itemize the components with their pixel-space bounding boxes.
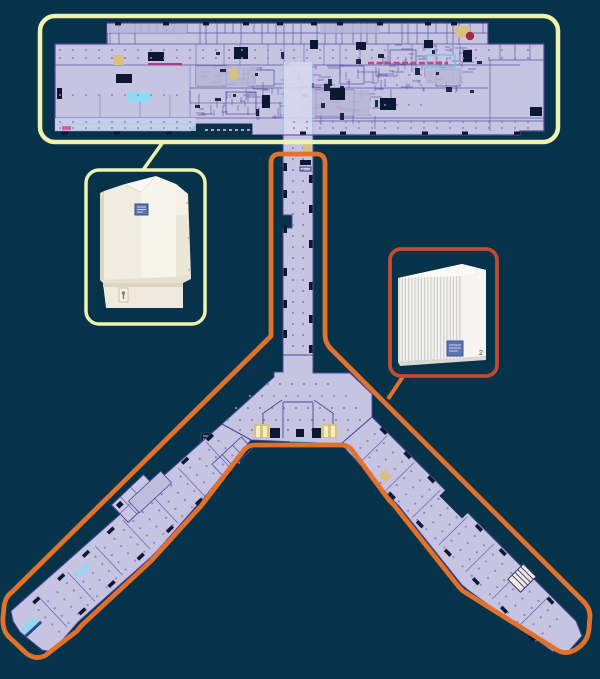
svg-text:2: 2 xyxy=(479,350,483,357)
